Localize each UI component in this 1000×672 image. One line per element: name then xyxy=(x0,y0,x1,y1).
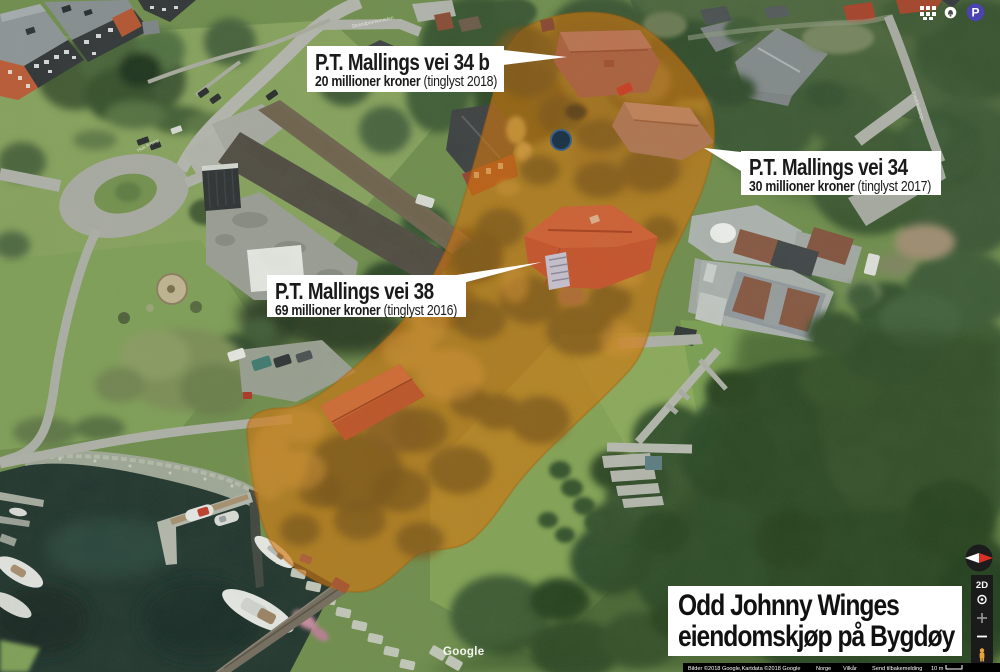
svg-text:P: P xyxy=(971,6,979,20)
svg-text:Bilder ©2018 Google,Kartdata ©: Bilder ©2018 Google,Kartdata ©2018 Googl… xyxy=(688,665,800,672)
svg-text:2D: 2D xyxy=(976,580,988,591)
svg-text:Send tilbakemelding: Send tilbakemelding xyxy=(872,666,922,672)
svg-text:Vilkår: Vilkår xyxy=(843,665,857,672)
svg-text:10 m: 10 m xyxy=(931,666,944,672)
svg-text:Norge: Norge xyxy=(816,666,831,672)
svg-text:Google: Google xyxy=(443,646,484,658)
